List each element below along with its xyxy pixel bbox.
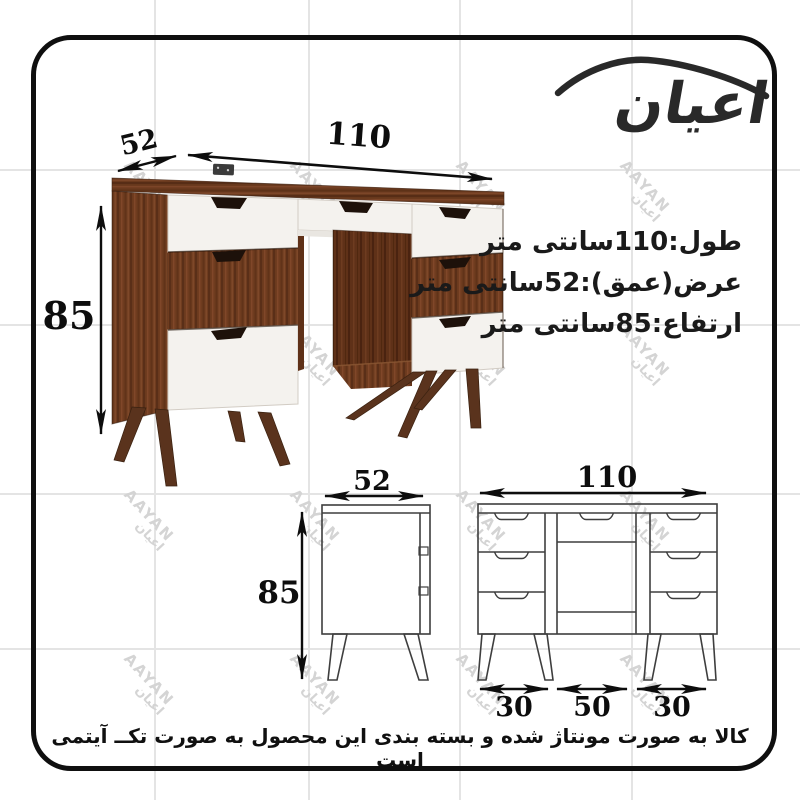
dim-label-ped-right: 30 [653, 692, 691, 723]
dim-label-ped-left: 30 [495, 692, 533, 723]
leg-outline [328, 634, 347, 680]
dim-label-width: 110 [325, 116, 392, 157]
dim-label-height-side: 85 [257, 575, 300, 611]
side-view: 52 85 [257, 466, 430, 680]
side-view-body [322, 505, 430, 634]
spec-line-depth: عرض(عمق):52سانتی متر [410, 263, 742, 304]
leg [155, 409, 177, 486]
desk-side-panel [112, 191, 168, 424]
dim-label-kneehole: 50 [573, 692, 611, 723]
kneehole-left-wall [298, 236, 304, 371]
leg-outline [534, 634, 553, 680]
front-notches [495, 513, 701, 599]
center-section [298, 199, 412, 389]
dim-label-depth: 52 [117, 123, 161, 162]
dim-depth-3d: 52 [117, 123, 176, 171]
leg-outline [478, 634, 495, 680]
dim-height-3d: 85 [43, 206, 101, 434]
leg [258, 412, 290, 466]
dim-label-height: 85 [43, 293, 96, 338]
front-view: 110 30 50 30 [478, 460, 717, 723]
leg [228, 411, 245, 442]
spec-line-height: ارتفاع:85سانتی متر [410, 304, 742, 345]
front-view-body [478, 504, 717, 634]
leg-outline [700, 634, 716, 680]
brand-logo: اعیان [546, 40, 776, 165]
leg-outline [404, 634, 428, 680]
spec-line-length: طول:110سانتی متر [410, 222, 742, 263]
top-sticker [213, 164, 234, 176]
left-pedestal [168, 195, 298, 410]
product-sheet: AAYANاعیانAAYANاعیانAAYANاعیانAAYANاعیان… [0, 0, 800, 800]
spec-list: طول:110سانتی متر عرض(عمق):52سانتی متر ار… [410, 222, 742, 345]
dim-label-depth-side: 52 [353, 466, 391, 497]
dim-label-width-front: 110 [577, 460, 638, 494]
leg-outline [644, 634, 661, 680]
footer-note: کالا به صورت مونتاژ شده و بسته بندی این … [40, 724, 760, 772]
kneehole-back-panel [333, 230, 412, 370]
logo-text: اعیان [611, 76, 773, 133]
leg [466, 369, 481, 428]
